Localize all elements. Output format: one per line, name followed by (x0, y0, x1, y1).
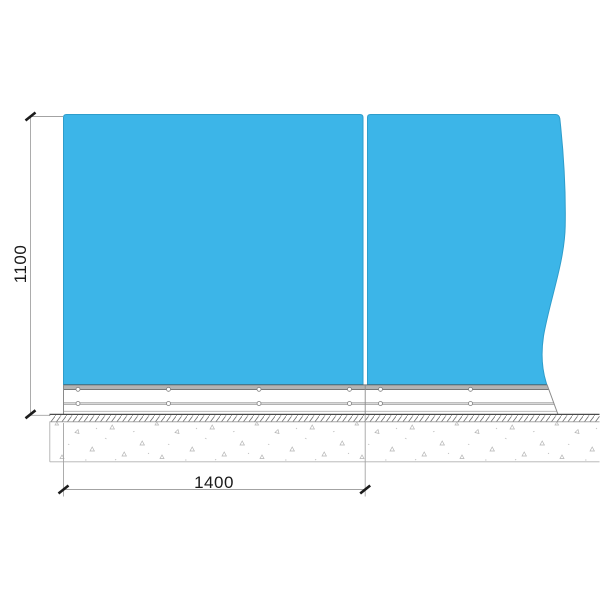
drawing-svg (0, 0, 600, 600)
rail-lines (64, 403, 559, 412)
width-dimension-label: 1400 (194, 473, 234, 493)
glass-panels (64, 115, 566, 385)
glass-panel-right-breakline (368, 115, 566, 385)
height-dimension-label: 1100 (11, 245, 31, 284)
base-rail-assembly (64, 385, 564, 412)
concrete-footing (50, 422, 600, 462)
ground-hatch-band (50, 414, 600, 421)
technical-drawing: 1100 1400 (0, 0, 600, 600)
glass-panel-left (64, 115, 364, 385)
